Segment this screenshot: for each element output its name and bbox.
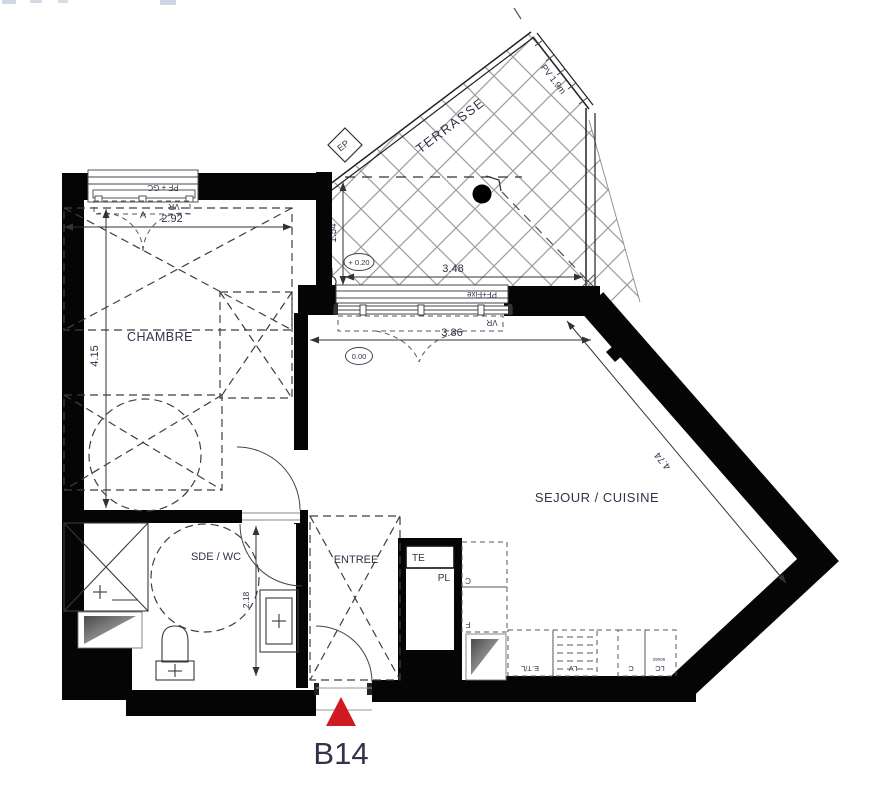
chambre-window: PF + GC VR A bbox=[88, 170, 198, 252]
vanity-sink bbox=[260, 590, 298, 652]
svg-text:2.18: 2.18 bbox=[241, 591, 251, 608]
svg-text:2.92: 2.92 bbox=[161, 213, 182, 225]
duct-niche-left bbox=[78, 612, 142, 648]
dim-bay-width: 3.86 bbox=[310, 327, 591, 344]
svg-text:3.48: 3.48 bbox=[442, 263, 463, 275]
floor-plan-svg: EP TERRASSE PV 1.9m 1.54 3.48 + 0.20 EP bbox=[0, 0, 877, 800]
room-label-chambre: CHAMBRE bbox=[127, 330, 193, 344]
room-label-entree: ENTREE bbox=[334, 554, 379, 566]
fridge-label: F bbox=[465, 620, 470, 629]
unit-label: B14 bbox=[313, 736, 368, 771]
bed-outline bbox=[64, 208, 292, 330]
terrasse-drain-dot bbox=[473, 185, 492, 204]
dim-sde-depth: 2.18 bbox=[241, 526, 260, 676]
section-mark-a: A bbox=[140, 210, 147, 221]
svg-text:4.15: 4.15 bbox=[89, 345, 101, 366]
wardrobe-outline bbox=[220, 292, 292, 398]
turning-circle bbox=[151, 524, 259, 632]
duct-niche-kitchen bbox=[466, 634, 506, 680]
svg-text:3.86: 3.86 bbox=[441, 327, 462, 339]
toilet bbox=[156, 626, 194, 680]
dim-sejour-diagonal: 4.74 bbox=[567, 321, 786, 583]
dim-chambre-width: 2.92 bbox=[64, 213, 292, 231]
ep-duct-diamond: EP bbox=[328, 128, 362, 162]
chambre-door-arc bbox=[237, 447, 300, 510]
washer-label: LC bbox=[655, 664, 665, 673]
terrasse-area: EP TERRASSE PV 1.9m 1.54 3.48 + 0.20 EP bbox=[321, 32, 640, 312]
sink-cooktop-label: E.T/L bbox=[521, 664, 539, 673]
chambre-area: PF + GC VR A 2.92 4.15 bbox=[64, 170, 300, 511]
sde-door-arc bbox=[240, 524, 302, 586]
washer-size-label: 60x60 bbox=[652, 657, 665, 662]
desk-outline bbox=[64, 395, 222, 490]
dishwasher-label: LV bbox=[569, 664, 578, 673]
entree-area: ENTREE bbox=[310, 516, 400, 682]
floor-plan-page: EP TERRASSE PV 1.9m 1.54 3.48 + 0.20 EP bbox=[0, 0, 877, 800]
column-label: C bbox=[465, 576, 471, 585]
sde-door-threshold bbox=[242, 510, 300, 523]
room-label-sde-wc: SDE / WC bbox=[191, 551, 241, 563]
svg-text:0.00: 0.00 bbox=[352, 352, 367, 361]
bay-window-label: PF+Fixe bbox=[466, 290, 497, 299]
closet-area: TE PL bbox=[406, 546, 454, 584]
room-label-sejour: SEJOUR / CUISINE bbox=[535, 490, 659, 505]
chambre-shutter-label: VR bbox=[168, 202, 179, 211]
chambre-window-label: PF + GC bbox=[147, 183, 179, 192]
svg-text:+ 0.20: + 0.20 bbox=[348, 258, 369, 267]
level-terrasse: + 0.20 bbox=[344, 254, 374, 271]
svg-text:4.74: 4.74 bbox=[652, 449, 673, 471]
electrical-panel-label: TE bbox=[412, 553, 425, 564]
top-edge-artifacts bbox=[2, 0, 521, 19]
dim-chambre-depth: 4.15 bbox=[89, 209, 110, 508]
closet-label: PL bbox=[438, 573, 451, 584]
cooktop-label: C bbox=[628, 664, 634, 673]
bay-shutter-label: VR bbox=[486, 318, 497, 327]
level-interior: 0.00 bbox=[346, 348, 373, 365]
